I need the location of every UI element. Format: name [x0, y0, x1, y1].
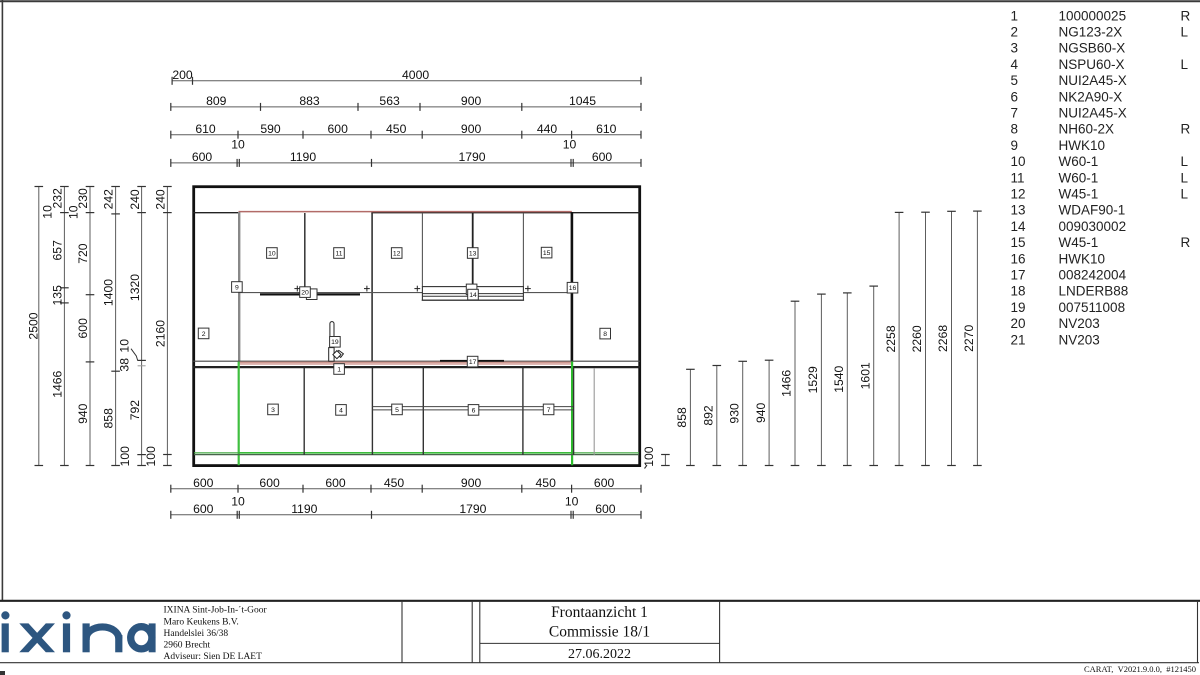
svg-text:R: R: [1181, 122, 1191, 137]
svg-text:008242004: 008242004: [1059, 268, 1127, 283]
svg-text:19: 19: [331, 339, 339, 346]
svg-text:4000: 4000: [402, 68, 429, 82]
svg-text:2258: 2258: [884, 325, 898, 352]
svg-text:1190: 1190: [291, 502, 317, 516]
svg-text:930: 930: [727, 403, 741, 424]
svg-text:4: 4: [339, 407, 343, 414]
svg-text:10: 10: [563, 137, 577, 151]
svg-text:1790: 1790: [458, 150, 485, 164]
svg-text:590: 590: [260, 122, 281, 136]
svg-text:1529: 1529: [806, 366, 820, 393]
svg-text:Maro Keukens B.V.: Maro Keukens B.V.: [164, 617, 239, 627]
svg-text:200: 200: [172, 68, 193, 82]
svg-text:450: 450: [536, 476, 557, 490]
svg-text:NH60-2X: NH60-2X: [1059, 122, 1115, 137]
svg-text:2: 2: [202, 331, 206, 338]
svg-text:20: 20: [1011, 316, 1026, 331]
svg-text:1: 1: [1011, 8, 1019, 23]
svg-text:6: 6: [472, 407, 476, 414]
svg-text:NSPU60-X: NSPU60-X: [1059, 57, 1125, 72]
svg-text:600: 600: [592, 150, 613, 164]
svg-text:16: 16: [1011, 251, 1026, 266]
svg-text:600: 600: [259, 476, 280, 490]
svg-text:LNDERB88: LNDERB88: [1059, 284, 1129, 299]
svg-text:10: 10: [117, 339, 131, 353]
svg-text:600: 600: [193, 502, 214, 516]
svg-text:450: 450: [384, 476, 405, 490]
svg-text:NUI2A45-X: NUI2A45-X: [1059, 106, 1127, 121]
svg-text:19: 19: [1011, 300, 1026, 315]
svg-text:1045: 1045: [569, 94, 596, 108]
svg-text:242: 242: [102, 189, 116, 210]
svg-text:135: 135: [50, 285, 64, 306]
svg-text:600: 600: [193, 476, 214, 490]
svg-text:440: 440: [537, 122, 558, 136]
svg-text:W45-1: W45-1: [1059, 187, 1099, 202]
svg-text:NG123-2X: NG123-2X: [1059, 25, 1123, 40]
svg-text:892: 892: [702, 405, 716, 426]
svg-text:940: 940: [76, 403, 90, 424]
svg-text:600: 600: [595, 502, 616, 516]
svg-text:L: L: [1181, 187, 1189, 202]
svg-text:2260: 2260: [910, 325, 924, 352]
svg-text:W45-1: W45-1: [1059, 235, 1099, 250]
svg-text:3: 3: [1011, 41, 1019, 56]
svg-text:CARAT, V2021.9.0.0, #121450: CARAT, V2021.9.0.0, #121450: [1084, 664, 1196, 674]
svg-text:11: 11: [335, 250, 342, 257]
svg-text:900: 900: [461, 122, 482, 136]
svg-text:NV203: NV203: [1059, 316, 1100, 331]
svg-text:1400: 1400: [102, 279, 116, 306]
svg-text:563: 563: [379, 94, 400, 108]
svg-text:10: 10: [66, 205, 80, 219]
svg-text:2: 2: [1011, 25, 1019, 40]
svg-text:7: 7: [1011, 106, 1019, 121]
svg-text:17: 17: [1011, 268, 1026, 283]
svg-text:1466: 1466: [780, 370, 794, 397]
svg-text:HWK10: HWK10: [1059, 138, 1106, 153]
svg-text:NGSB60-X: NGSB60-X: [1059, 41, 1126, 56]
svg-text:21: 21: [1011, 332, 1026, 347]
svg-text:858: 858: [102, 408, 116, 429]
svg-text:WDAF90-1: WDAF90-1: [1059, 203, 1126, 218]
svg-text:NV203: NV203: [1059, 332, 1100, 347]
svg-text:10: 10: [1011, 154, 1026, 169]
svg-text:14: 14: [1011, 219, 1027, 234]
svg-text:Commissie 18/1: Commissie 18/1: [549, 624, 650, 641]
svg-text:2960 Brecht: 2960 Brecht: [164, 640, 211, 650]
svg-text:1790: 1790: [459, 502, 486, 516]
svg-text:17: 17: [469, 359, 477, 366]
svg-text:10: 10: [231, 137, 245, 151]
svg-text:9: 9: [1011, 138, 1019, 153]
svg-text:1190: 1190: [290, 150, 316, 164]
svg-text:L: L: [1181, 170, 1189, 185]
svg-text:007511008: 007511008: [1059, 300, 1126, 315]
svg-text:009030002: 009030002: [1059, 219, 1127, 234]
svg-text:10: 10: [565, 494, 579, 508]
svg-text:900: 900: [461, 94, 482, 108]
svg-text:2268: 2268: [936, 325, 950, 352]
svg-text:14: 14: [469, 292, 477, 299]
svg-text:610: 610: [195, 122, 216, 136]
svg-text:240: 240: [154, 189, 168, 210]
svg-text:15: 15: [1011, 235, 1026, 250]
svg-text:100: 100: [642, 446, 656, 467]
svg-text:10: 10: [231, 494, 245, 508]
svg-text:1540: 1540: [832, 365, 846, 392]
svg-text:Frontaanzicht 1: Frontaanzicht 1: [551, 604, 648, 621]
svg-text:38: 38: [117, 358, 131, 372]
svg-text:657: 657: [51, 240, 65, 261]
svg-text:L: L: [1181, 154, 1189, 169]
svg-text:858: 858: [675, 407, 689, 428]
svg-text:HWK10: HWK10: [1059, 251, 1106, 266]
svg-text:11: 11: [1011, 170, 1025, 185]
svg-text:2270: 2270: [962, 325, 976, 352]
svg-text:R: R: [1181, 235, 1191, 250]
svg-text:600: 600: [328, 122, 349, 136]
svg-text:W60-1: W60-1: [1059, 170, 1099, 185]
svg-text:1: 1: [337, 366, 341, 373]
svg-text:600: 600: [594, 476, 615, 490]
svg-text:1320: 1320: [128, 274, 142, 301]
svg-text:R: R: [1181, 8, 1191, 23]
svg-text:4: 4: [1011, 57, 1019, 72]
svg-text:5: 5: [1011, 73, 1019, 88]
svg-text:2500: 2500: [26, 312, 40, 339]
svg-text:600: 600: [76, 318, 90, 339]
svg-text:9: 9: [235, 284, 239, 291]
svg-text:12: 12: [1011, 187, 1026, 202]
svg-text:L: L: [1181, 25, 1189, 40]
svg-text:900: 900: [461, 476, 482, 490]
svg-text:16: 16: [569, 285, 577, 292]
svg-text:6: 6: [1011, 89, 1019, 104]
svg-text:18: 18: [1011, 284, 1026, 299]
svg-text:600: 600: [192, 150, 213, 164]
svg-text:792: 792: [128, 400, 142, 421]
svg-text:8: 8: [603, 331, 607, 338]
svg-text:450: 450: [386, 122, 407, 136]
svg-text:100: 100: [144, 446, 158, 467]
svg-text:W60-1: W60-1: [1059, 154, 1099, 169]
svg-text:NUI2A45-X: NUI2A45-X: [1059, 73, 1127, 88]
svg-text:1601: 1601: [858, 362, 872, 389]
svg-text:Adviseur: Sien DE LAET: Adviseur: Sien DE LAET: [164, 652, 263, 662]
svg-text:NK2A90-X: NK2A90-X: [1059, 89, 1123, 104]
svg-text:5: 5: [395, 407, 399, 414]
svg-text:1466: 1466: [50, 370, 64, 397]
svg-text:883: 883: [299, 94, 320, 108]
svg-text:10: 10: [41, 205, 55, 219]
svg-text:13: 13: [469, 250, 477, 257]
svg-text:13: 13: [1011, 203, 1026, 218]
svg-text:3: 3: [271, 407, 275, 414]
svg-text:100: 100: [118, 446, 132, 467]
svg-text:100000025: 100000025: [1059, 8, 1127, 23]
svg-text:2160: 2160: [153, 320, 167, 347]
svg-text:809: 809: [206, 94, 227, 108]
svg-text:610: 610: [596, 122, 617, 136]
svg-text:8: 8: [1011, 122, 1019, 137]
svg-text:12: 12: [393, 250, 401, 257]
svg-text:IXINA Sint-Job-In-´t-Goor: IXINA Sint-Job-In-´t-Goor: [164, 605, 268, 616]
svg-text:940: 940: [754, 402, 768, 423]
svg-text:7: 7: [547, 407, 551, 414]
svg-text:L: L: [1181, 57, 1189, 72]
svg-text:240: 240: [128, 189, 142, 210]
svg-text:27.06.2022: 27.06.2022: [568, 647, 631, 662]
svg-text:20: 20: [301, 290, 309, 297]
svg-text:15: 15: [543, 250, 551, 257]
svg-text:720: 720: [76, 243, 90, 264]
svg-text:10: 10: [268, 250, 276, 257]
svg-text:Handelslei 36/38: Handelslei 36/38: [164, 629, 229, 639]
svg-text:600: 600: [325, 476, 346, 490]
